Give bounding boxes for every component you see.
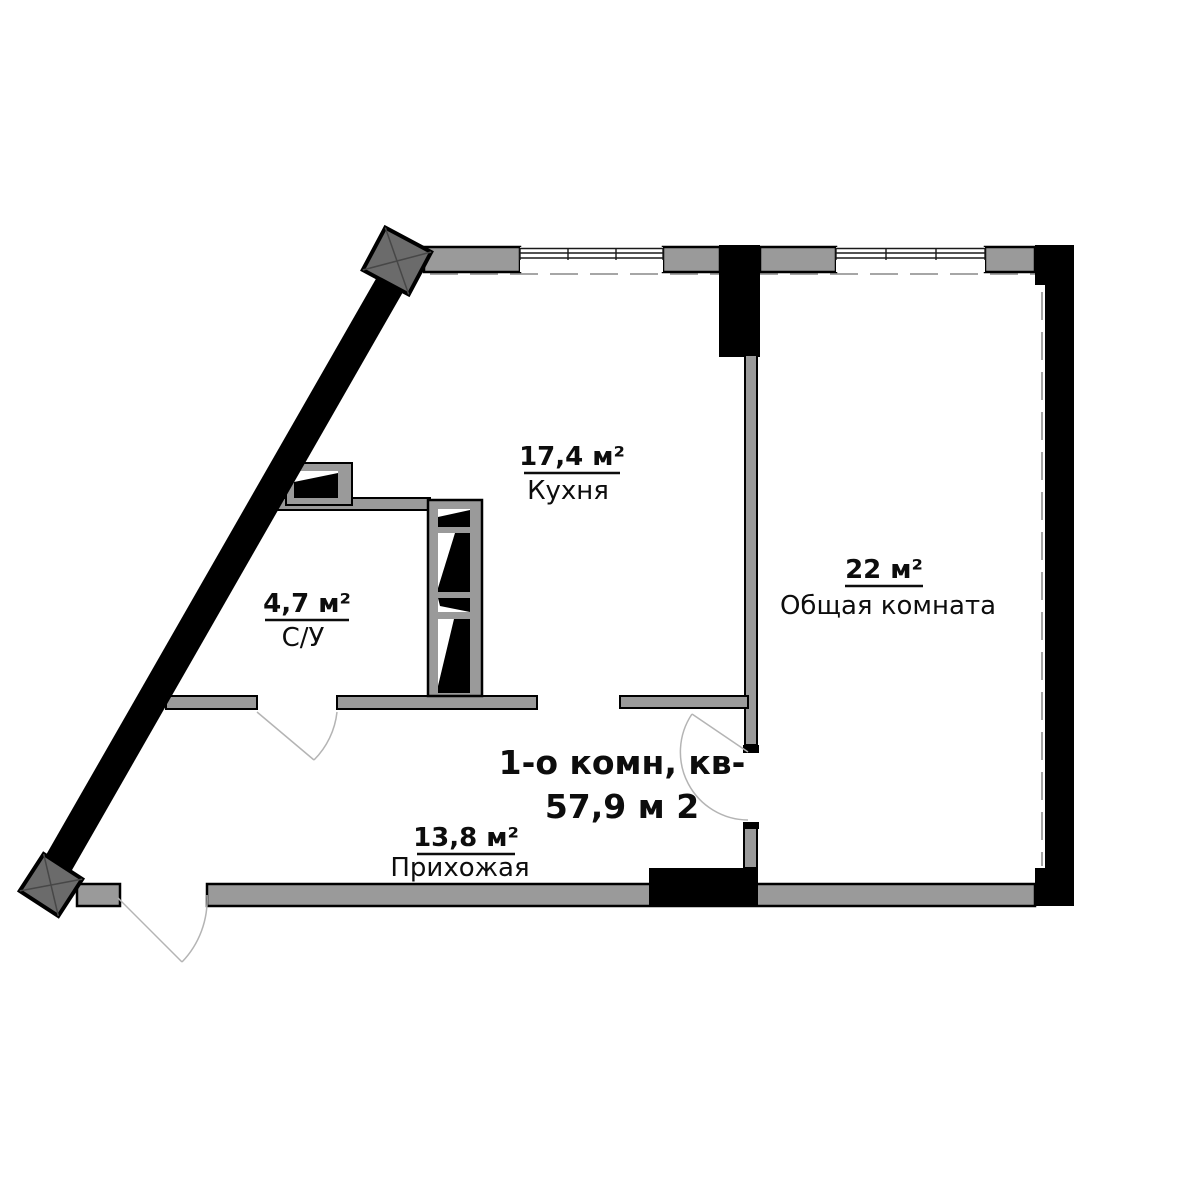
living-room-wall-cap-top xyxy=(743,745,759,753)
apartment-title-line1: 1-о комн, кв- xyxy=(499,743,746,782)
plan-background xyxy=(0,0,1181,1181)
living-room-name-label: Общая комната xyxy=(780,591,996,621)
bathroom-name-label: С/У xyxy=(282,623,325,653)
hallway-kitchen-wall-right xyxy=(620,696,748,708)
kitchen-area-label: 17,4 м² xyxy=(519,442,625,472)
top-wall-segment-4 xyxy=(985,247,1035,272)
kitchen-name-label: Кухня xyxy=(527,476,609,506)
bottom-wall-entry-stub xyxy=(77,884,120,906)
right-wall-top-corner xyxy=(1035,245,1074,285)
kitchen-window xyxy=(520,247,663,272)
hallway-name-label: Прихожая xyxy=(390,853,529,883)
right-wall-bottom-corner xyxy=(1035,868,1074,906)
living-room-door-stub-cap xyxy=(743,822,759,829)
apartment-title-line2: 57,9 м 2 xyxy=(545,787,699,826)
living-room-door-stub xyxy=(744,828,757,868)
top-wall-segment-1 xyxy=(424,247,520,272)
bottom-wall-black-block xyxy=(649,868,758,906)
bathroom-area-label: 4,7 м² xyxy=(263,589,351,619)
floor-plan: 17,4 м² Кухня 4,7 м² С/У 22 м² Общая ком… xyxy=(0,0,1181,1181)
bottom-wall-main xyxy=(207,884,1035,906)
living-room-window xyxy=(836,247,985,272)
living-room-area-label: 22 м² xyxy=(845,555,923,585)
top-wall-segment-3 xyxy=(760,247,836,272)
ventilation-duct xyxy=(428,500,482,696)
right-wall xyxy=(1045,285,1074,868)
top-wall-segment-2 xyxy=(663,247,720,272)
hallway-bathroom-wall-left xyxy=(166,696,257,709)
hallway-area-label: 13,8 м² xyxy=(413,823,519,853)
bathroom-bottom-wall xyxy=(337,696,537,709)
kitchen-living-partition xyxy=(719,245,760,357)
living-room-wall xyxy=(745,355,757,745)
